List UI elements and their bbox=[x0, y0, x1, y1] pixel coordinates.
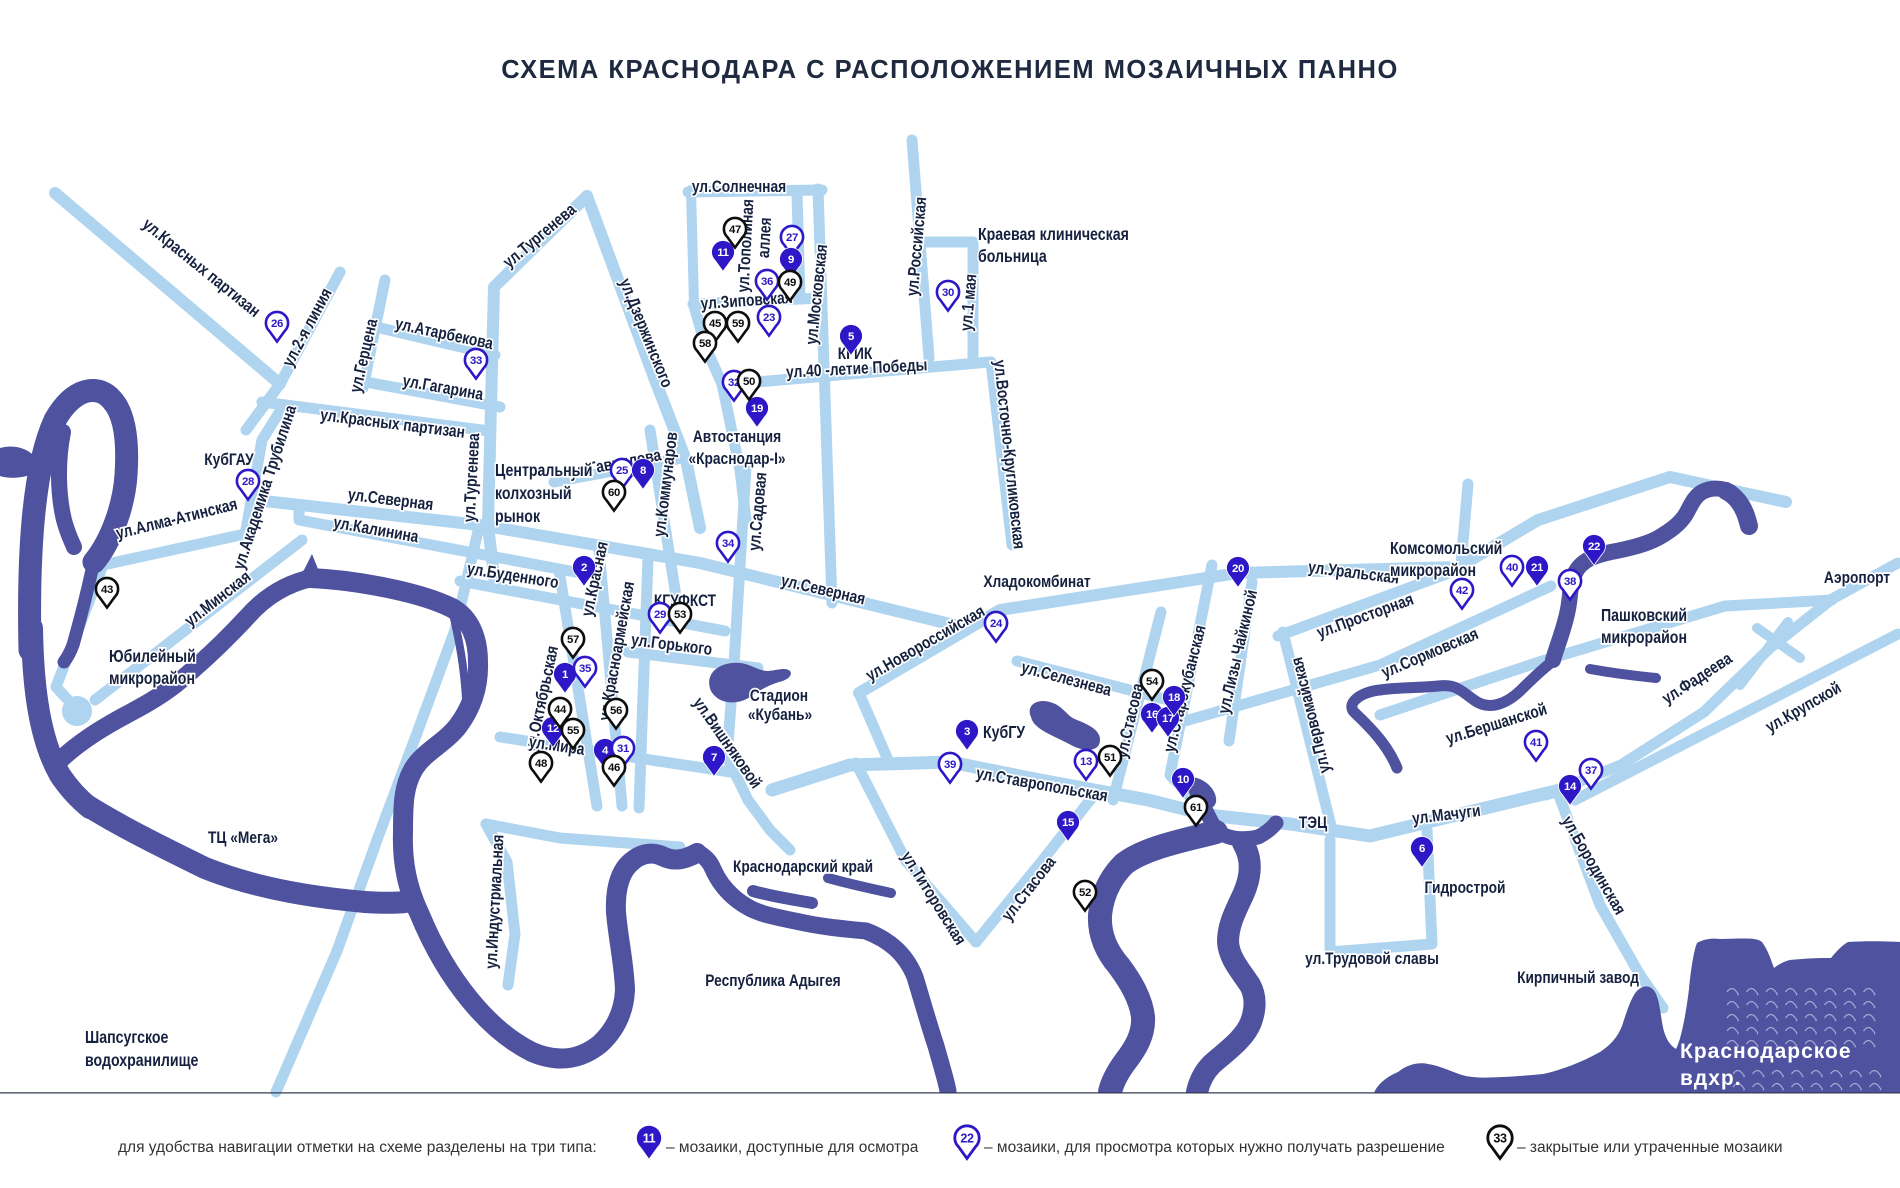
svg-text:11: 11 bbox=[717, 247, 729, 259]
svg-text:«Краснодар-I»: «Краснодар-I» bbox=[688, 450, 785, 469]
svg-text:ул.Солнечная: ул.Солнечная bbox=[692, 178, 786, 197]
svg-text:41: 41 bbox=[1530, 737, 1543, 749]
svg-text:микрорайон: микрорайон bbox=[109, 670, 195, 689]
svg-text:Краснодарский край: Краснодарский край bbox=[733, 858, 873, 877]
svg-text:21: 21 bbox=[1531, 562, 1544, 574]
svg-text:13: 13 bbox=[1080, 756, 1092, 768]
svg-text:53: 53 bbox=[674, 609, 686, 621]
svg-text:ул.Трудовой славы: ул.Трудовой славы bbox=[1305, 950, 1439, 969]
svg-text:ул.Стасова: ул.Стасова bbox=[998, 853, 1060, 925]
svg-text:ул.Мачуги: ул.Мачуги bbox=[1411, 802, 1482, 829]
svg-text:Республика Адыгея: Республика Адыгея bbox=[705, 972, 840, 991]
svg-text:43: 43 bbox=[101, 584, 113, 596]
svg-text:колхозный: колхозный bbox=[495, 485, 572, 504]
svg-text:ул.Уральская: ул.Уральская bbox=[1307, 558, 1400, 588]
svg-text:КубГАУ: КубГАУ bbox=[204, 451, 254, 470]
svg-text:ул.Дзержинского: ул.Дзержинского bbox=[615, 276, 676, 390]
svg-text:40: 40 bbox=[1506, 562, 1518, 574]
svg-text:22: 22 bbox=[960, 1131, 974, 1145]
svg-text:Аэропорт: Аэропорт bbox=[1824, 569, 1891, 588]
svg-text:42: 42 bbox=[1456, 585, 1468, 597]
svg-text:Гидрострой: Гидрострой bbox=[1425, 879, 1506, 898]
svg-text:46: 46 bbox=[608, 762, 620, 774]
svg-text:33: 33 bbox=[470, 355, 482, 367]
svg-text:«Кубань»: «Кубань» bbox=[748, 706, 812, 725]
svg-text:ул.Северная: ул.Северная bbox=[779, 571, 867, 609]
svg-text:ТЭЦ: ТЭЦ bbox=[1299, 814, 1328, 833]
svg-text:5: 5 bbox=[848, 331, 855, 343]
svg-text:47: 47 bbox=[729, 224, 741, 236]
svg-text:57: 57 bbox=[567, 634, 579, 646]
svg-text:7: 7 bbox=[711, 752, 717, 764]
svg-text:15: 15 bbox=[1062, 817, 1075, 829]
svg-text:11: 11 bbox=[643, 1131, 656, 1145]
svg-text:ул.Первомайская: ул.Первомайская bbox=[1288, 655, 1335, 775]
svg-text:36: 36 bbox=[761, 276, 773, 288]
svg-text:44: 44 bbox=[554, 704, 567, 716]
svg-text:1: 1 bbox=[562, 669, 569, 681]
svg-text:вдхр.: вдхр. bbox=[1680, 1067, 1742, 1090]
svg-text:Комсомольский: Комсомольский bbox=[1390, 540, 1502, 559]
svg-text:55: 55 bbox=[567, 725, 580, 737]
svg-text:ул.Тургенева: ул.Тургенева bbox=[460, 432, 483, 522]
svg-text:30: 30 bbox=[942, 287, 954, 299]
svg-text:– закрытые или утраченные моза: – закрытые или утраченные мозаики bbox=[1517, 1139, 1783, 1156]
svg-text:КубГУ: КубГУ bbox=[983, 724, 1026, 743]
svg-text:25: 25 bbox=[616, 465, 629, 477]
svg-text:22: 22 bbox=[1588, 541, 1600, 553]
svg-text:ул.Титоровская: ул.Титоровская bbox=[897, 848, 969, 948]
svg-text:Шапсугское: Шапсугское bbox=[85, 1029, 169, 1048]
svg-text:59: 59 bbox=[732, 318, 744, 330]
svg-text:ул.Индустриальная: ул.Индустриальная bbox=[482, 834, 508, 969]
svg-text:ТЦ «Мега»: ТЦ «Мега» bbox=[208, 829, 278, 848]
svg-text:2: 2 bbox=[581, 562, 587, 574]
svg-text:Юбилейный: Юбилейный bbox=[109, 648, 196, 667]
svg-text:33: 33 bbox=[1493, 1131, 1507, 1145]
svg-text:ул.Красных партизан: ул.Красных партизан bbox=[319, 406, 466, 442]
svg-text:19: 19 bbox=[751, 403, 763, 415]
svg-text:– мозаики, для просмотра котор: – мозаики, для просмотра которых нужно п… bbox=[984, 1139, 1445, 1156]
svg-text:17: 17 bbox=[1162, 713, 1174, 725]
svg-text:аллея: аллея bbox=[755, 217, 776, 259]
svg-text:Краснодарское: Краснодарское bbox=[1680, 1040, 1852, 1063]
svg-text:31: 31 bbox=[617, 743, 630, 755]
svg-text:49: 49 bbox=[784, 277, 796, 289]
svg-text:28: 28 bbox=[242, 476, 254, 488]
svg-text:58: 58 bbox=[699, 338, 711, 350]
svg-text:14: 14 bbox=[1564, 781, 1577, 793]
svg-text:Пашковский: Пашковский bbox=[1601, 607, 1687, 626]
svg-text:56: 56 bbox=[610, 705, 622, 717]
svg-text:ул.Восточно-Кругликовская: ул.Восточно-Кругликовская bbox=[990, 359, 1028, 550]
svg-text:27: 27 bbox=[786, 232, 798, 244]
svg-text:ул.Тургенева: ул.Тургенева bbox=[500, 200, 580, 272]
svg-text:рынок: рынок bbox=[495, 508, 540, 527]
svg-text:СХЕМА КРАСНОДАРА С РАСПОЛОЖЕНИ: СХЕМА КРАСНОДАРА С РАСПОЛОЖЕНИЕМ МОЗАИЧН… bbox=[501, 56, 1399, 84]
svg-text:Стадион: Стадион bbox=[750, 687, 808, 706]
svg-text:водохранилище: водохранилище bbox=[85, 1052, 199, 1071]
svg-text:37: 37 bbox=[1585, 765, 1597, 777]
svg-text:Краевая клиническая: Краевая клиническая bbox=[978, 226, 1129, 245]
svg-text:ул.Селезнева: ул.Селезнева bbox=[1019, 658, 1114, 700]
svg-text:60: 60 bbox=[608, 487, 620, 499]
svg-text:3: 3 bbox=[964, 726, 970, 738]
svg-text:45: 45 bbox=[709, 318, 722, 330]
svg-text:10: 10 bbox=[1177, 774, 1189, 786]
svg-text:23: 23 bbox=[763, 312, 775, 324]
svg-text:39: 39 bbox=[944, 759, 956, 771]
svg-text:35: 35 bbox=[579, 663, 592, 675]
svg-text:микрорайон: микрорайон bbox=[1601, 629, 1687, 648]
svg-text:Кирпичный завод: Кирпичный завод bbox=[1517, 969, 1639, 988]
svg-text:для удобства навигации отметки: для удобства навигации отметки на схеме … bbox=[118, 1139, 597, 1156]
svg-text:61: 61 bbox=[1190, 802, 1203, 814]
svg-text:– мозаики, доступные для осмот: – мозаики, доступные для осмотра bbox=[666, 1139, 919, 1156]
svg-text:38: 38 bbox=[1564, 576, 1576, 588]
svg-text:20: 20 bbox=[1232, 563, 1244, 575]
svg-text:Автостанция: Автостанция bbox=[693, 428, 781, 447]
svg-text:микрорайон: микрорайон bbox=[1390, 562, 1476, 581]
svg-text:52: 52 bbox=[1079, 887, 1091, 899]
svg-text:ул.Красных партизан: ул.Красных партизан bbox=[139, 215, 264, 321]
svg-text:Центральный: Центральный bbox=[495, 462, 592, 481]
svg-text:больница: больница bbox=[978, 248, 1047, 267]
svg-text:Хладокомбинат: Хладокомбинат bbox=[983, 573, 1091, 592]
svg-text:51: 51 bbox=[1104, 752, 1117, 764]
svg-text:8: 8 bbox=[640, 465, 646, 477]
svg-text:48: 48 bbox=[535, 758, 547, 770]
svg-text:26: 26 bbox=[271, 318, 283, 330]
svg-text:50: 50 bbox=[743, 376, 755, 388]
svg-text:34: 34 bbox=[722, 538, 735, 550]
svg-text:54: 54 bbox=[1146, 676, 1159, 688]
svg-text:ул.Зиповская: ул.Зиповская bbox=[700, 289, 793, 314]
svg-text:4: 4 bbox=[602, 745, 609, 757]
svg-text:24: 24 bbox=[990, 618, 1003, 630]
svg-text:29: 29 bbox=[654, 609, 666, 621]
svg-text:9: 9 bbox=[788, 254, 794, 266]
svg-text:18: 18 bbox=[1168, 692, 1180, 704]
svg-text:6: 6 bbox=[1419, 843, 1425, 855]
